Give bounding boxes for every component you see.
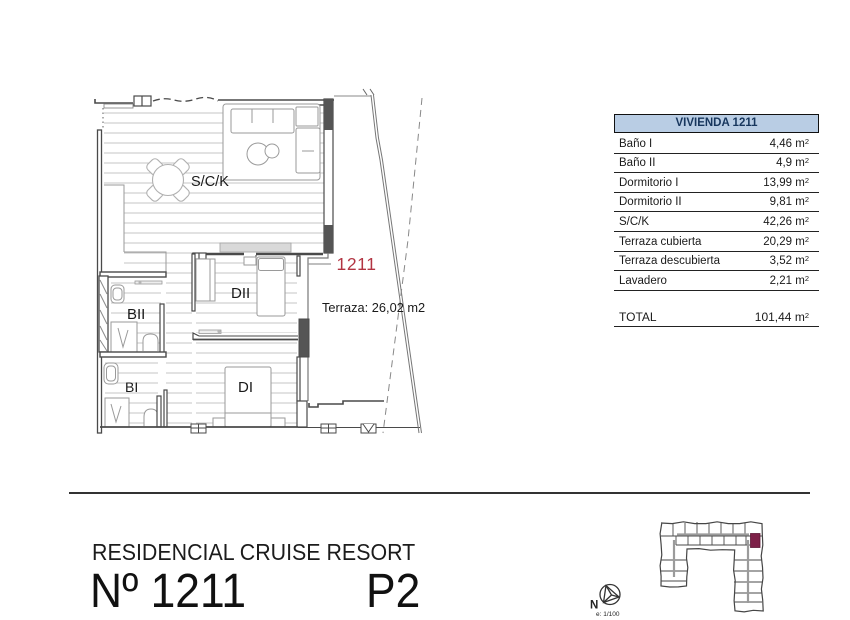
- svg-text:N: N: [590, 600, 598, 612]
- svg-text:BII: BII: [127, 306, 145, 323]
- svg-text:DII: DII: [231, 285, 250, 302]
- svg-text:S/C/K: S/C/K: [191, 174, 229, 190]
- svg-text:e: 1/100: e: 1/100: [596, 611, 620, 618]
- svg-text:Terraza: 26,02 m2: Terraza: 26,02 m2: [322, 300, 425, 315]
- svg-text:BI: BI: [125, 379, 138, 395]
- svg-text:DI: DI: [238, 379, 253, 396]
- svg-text:1211: 1211: [337, 254, 377, 274]
